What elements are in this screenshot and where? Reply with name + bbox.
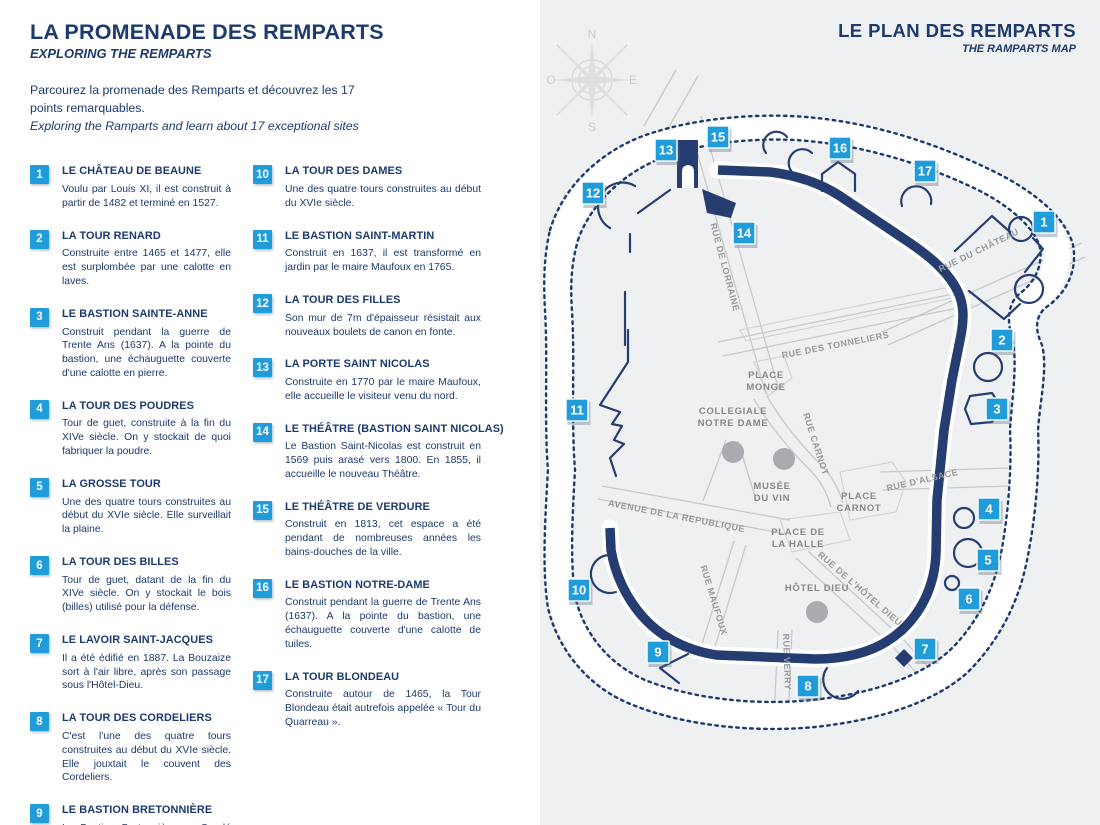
- brochure-page: LA PROMENADE DES REMPARTS EXPLORING THE …: [0, 0, 1100, 825]
- site-description: Voulu par Louis XI, il est construit à p…: [62, 183, 231, 211]
- map-title: LE PLAN DES REMPARTS: [838, 20, 1076, 42]
- site-title: LE BASTION SAINT-MARTIN: [285, 230, 481, 244]
- map-marker-16: 16: [829, 137, 854, 163]
- site-number-badge: 14: [253, 423, 272, 442]
- legend-panel: LA PROMENADE DES REMPARTS EXPLORING THE …: [0, 0, 540, 825]
- site-item-body: LA GROSSE TOURUne des quatre tours const…: [62, 478, 231, 537]
- compass-south-label: S: [588, 120, 596, 134]
- site-item-1: 1LE CHÂTEAU DE BEAUNEVoulu par Louis XI,…: [30, 165, 231, 210]
- map-marker-13: 13: [655, 139, 680, 165]
- map-marker-4: 4: [978, 498, 1003, 524]
- theatre-bastion-shape: [702, 189, 736, 218]
- site-title: LA TOUR RENARD: [62, 230, 231, 244]
- site-number-badge: 11: [253, 230, 272, 249]
- site-item-12: 12LA TOUR DES FILLESSon mur de 7m d'épai…: [253, 294, 481, 339]
- site-item-body: LA TOUR DES CORDELIERSC'est l'une des qu…: [62, 712, 231, 785]
- site-item-8: 8LA TOUR DES CORDELIERSC'est l'une des q…: [30, 712, 231, 785]
- intro-text-fr: Parcourez la promenade des Remparts et d…: [30, 82, 382, 118]
- map-marker-15: 15: [707, 126, 732, 152]
- site-title: LE THÉÂTRE DE VERDURE: [285, 501, 481, 515]
- site-item-body: LA TOUR BLONDEAUConstruite autour de 146…: [285, 671, 481, 730]
- site-description: Construit en 1813, cet espace a été pend…: [285, 518, 481, 559]
- site-item-11: 11LE BASTION SAINT-MARTINConstruit en 16…: [253, 230, 481, 275]
- site-number-badge: 10: [253, 165, 272, 184]
- svg-text:9: 9: [654, 645, 661, 660]
- map-header: LE PLAN DES REMPARTS THE RAMPARTS MAP: [838, 20, 1076, 55]
- svg-text:5: 5: [984, 553, 991, 568]
- site-item-13: 13LA PORTE SAINT NICOLASConstruite en 17…: [253, 358, 481, 403]
- svg-text:17: 17: [918, 164, 932, 179]
- map-label: RUE CARNOT: [801, 412, 831, 477]
- site-description: Le Bastion Saint-Nicolas est construit e…: [285, 440, 481, 481]
- map-marker-6: 6: [958, 588, 983, 614]
- page-title: LA PROMENADE DES REMPARTS: [30, 20, 520, 45]
- site-title: LA TOUR DES DAMES: [285, 165, 481, 179]
- site-number-badge: 17: [253, 671, 272, 690]
- site-number-badge: 16: [253, 579, 272, 598]
- site-title: LE BASTION SAINTE-ANNE: [62, 308, 231, 322]
- site-item-body: LE BASTION SAINTE-ANNEConstruit pendant …: [62, 308, 231, 381]
- site-item-17: 17LA TOUR BLONDEAUConstruite autour de 1…: [253, 671, 481, 730]
- site-title: LA TOUR DES FILLES: [285, 294, 481, 308]
- site-description: Construite autour de 1465, la Tour Blond…: [285, 688, 481, 729]
- svg-text:1: 1: [1040, 215, 1047, 230]
- map-marker-2: 2: [991, 329, 1016, 355]
- site-item-14: 14LE THÉÂTRE (BASTION SAINT NICOLAS)Le B…: [253, 423, 481, 482]
- site-item-body: LA PORTE SAINT NICOLASConstruite en 1770…: [285, 358, 481, 403]
- site-item-10: 10LA TOUR DES DAMESUne des quatre tours …: [253, 165, 481, 210]
- site-description: Construite en 1770 par le maire Maufoux,…: [285, 376, 481, 404]
- map-label: RUE MAUFOUX: [698, 564, 729, 636]
- site-description: C'est l'une des quatre tours construites…: [62, 730, 231, 785]
- site-number-badge: 12: [253, 294, 272, 313]
- site-number-badge: 3: [30, 308, 49, 327]
- sites-list: 1LE CHÂTEAU DE BEAUNEVoulu par Louis XI,…: [0, 135, 540, 825]
- hotel-dieu-dot: [806, 601, 828, 623]
- site-title: LE CHÂTEAU DE BEAUNE: [62, 165, 231, 179]
- map-label: PLACEMONGE: [746, 370, 785, 393]
- site-number-badge: 9: [30, 804, 49, 823]
- site-number-badge: 2: [30, 230, 49, 249]
- site-item-3: 3LE BASTION SAINTE-ANNEConstruit pendant…: [30, 308, 231, 381]
- svg-text:12: 12: [586, 186, 600, 201]
- site-item-body: LA TOUR RENARDConstruite entre 1465 et 1…: [62, 230, 231, 289]
- site-description: Construite entre 1465 et 1477, elle est …: [62, 247, 231, 288]
- site-number-badge: 6: [30, 556, 49, 575]
- site-item-6: 6LA TOUR DES BILLESTour de guet, datant …: [30, 556, 231, 615]
- svg-text:6: 6: [965, 592, 972, 607]
- map-marker-14: 14: [733, 222, 758, 248]
- site-title: LA TOUR DES CORDELIERS: [62, 712, 231, 726]
- site-item-body: LE BASTION BRETONNIÈRELe Bastion Bretonn…: [62, 804, 231, 825]
- site-item-4: 4LA TOUR DES POUDRESTour de guet, constr…: [30, 400, 231, 459]
- site-description: Construit pendant la guerre de Trente An…: [62, 326, 231, 381]
- map-label: RUE DES TONNELIERS: [781, 330, 890, 361]
- svg-text:15: 15: [711, 130, 725, 145]
- site-item-body: LE CHÂTEAU DE BEAUNEVoulu par Louis XI, …: [62, 165, 231, 210]
- sites-column-1: 1LE CHÂTEAU DE BEAUNEVoulu par Louis XI,…: [30, 165, 231, 825]
- site-item-body: LE THÉÂTRE (BASTION SAINT NICOLAS)Le Bas…: [285, 423, 481, 482]
- site-item-body: LE LAVOIR SAINT-JACQUESIl a été édifié e…: [62, 634, 231, 693]
- map-label: HÔTEL DIEU: [785, 582, 849, 594]
- map-label: PLACECARNOT: [837, 491, 882, 514]
- map-label: RUE VERRY: [781, 633, 793, 690]
- site-number-badge: 15: [253, 501, 272, 520]
- map-panel: LE PLAN DES REMPARTS THE RAMPARTS MAP N …: [540, 0, 1100, 825]
- map-subtitle: THE RAMPARTS MAP: [838, 43, 1076, 55]
- compass-north-label: N: [588, 27, 597, 41]
- page-subtitle: EXPLORING THE REMPARTS: [30, 46, 520, 61]
- site-number-badge: 7: [30, 634, 49, 653]
- site-description: Construit en 1637, il est transformé en …: [285, 247, 481, 275]
- site-number-badge: 4: [30, 400, 49, 419]
- site-description: Son mur de 7m d'épaisseur résistait aux …: [285, 312, 481, 340]
- collegiale-notre-dame-dot: [722, 441, 744, 463]
- site-number-badge: 13: [253, 358, 272, 377]
- site-item-body: LA TOUR DES POUDRESTour de guet, constru…: [62, 400, 231, 459]
- map-marker-9: 9: [647, 641, 672, 667]
- site-description: Construit pendant la guerre de Trente An…: [285, 596, 481, 651]
- site-title: LE THÉÂTRE (BASTION SAINT NICOLAS): [285, 423, 481, 437]
- map-marker-7: 7: [914, 638, 939, 664]
- map-label: AVENUE DE LA REPUBLIQUE: [607, 498, 745, 534]
- compass-west-label: O: [546, 73, 555, 87]
- site-item-5: 5LA GROSSE TOURUne des quatre tours cons…: [30, 478, 231, 537]
- site-title: LE LAVOIR SAINT-JACQUES: [62, 634, 231, 648]
- site-item-body: LA TOUR DES BILLESTour de guet, datant d…: [62, 556, 231, 615]
- intro-text-en: Exploring the Ramparts and learn about 1…: [30, 118, 390, 136]
- site-title: LA PORTE SAINT NICOLAS: [285, 358, 481, 372]
- site-item-16: 16LE BASTION NOTRE-DAMEConstruit pendant…: [253, 579, 481, 652]
- svg-text:10: 10: [572, 583, 586, 598]
- map-label: COLLEGIALENOTRE DAME: [698, 406, 769, 429]
- sites-column-2: 10LA TOUR DES DAMESUne des quatre tours …: [253, 165, 481, 825]
- map-marker-1: 1: [1033, 211, 1058, 237]
- site-description: Une des quatre tours construites au débu…: [62, 496, 231, 537]
- site-item-7: 7LE LAVOIR SAINT-JACQUESIl a été édifié …: [30, 634, 231, 693]
- map-label: PLACE DELA HALLE: [771, 527, 825, 550]
- compass-east-label: E: [629, 73, 637, 87]
- map-marker-11: 11: [566, 399, 591, 425]
- svg-text:2: 2: [998, 333, 1005, 348]
- site-item-body: LE THÉÂTRE DE VERDUREConstruit en 1813, …: [285, 501, 481, 560]
- site-number-badge: 8: [30, 712, 49, 731]
- map-label: RUE DU CHÂTEAU: [937, 226, 1021, 274]
- site-title: LA TOUR DES BILLES: [62, 556, 231, 570]
- site-item-15: 15LE THÉÂTRE DE VERDUREConstruit en 1813…: [253, 501, 481, 560]
- site-item-body: LE BASTION SAINT-MARTINConstruit en 1637…: [285, 230, 481, 275]
- site-title: LA GROSSE TOUR: [62, 478, 231, 492]
- musee-du-vin-dot: [773, 448, 795, 470]
- svg-text:7: 7: [921, 642, 928, 657]
- site-item-body: LE BASTION NOTRE-DAMEConstruit pendant l…: [285, 579, 481, 652]
- svg-text:16: 16: [833, 141, 847, 156]
- site-item-body: LA TOUR DES DAMESUne des quatre tours co…: [285, 165, 481, 210]
- svg-text:4: 4: [985, 502, 993, 517]
- svg-text:11: 11: [570, 403, 584, 418]
- map-marker-5: 5: [977, 549, 1002, 575]
- map-marker-10: 10: [568, 579, 593, 605]
- site-title: LE BASTION NOTRE-DAME: [285, 579, 481, 593]
- svg-text:3: 3: [993, 402, 1000, 417]
- porte-saint-nicolas-gate-icon: [677, 140, 698, 188]
- legend-header: LA PROMENADE DES REMPARTS EXPLORING THE …: [0, 0, 540, 135]
- svg-text:8: 8: [804, 679, 811, 694]
- site-description: Une des quatre tours construites au débu…: [285, 183, 481, 211]
- site-description: Tour de guet, construite à la fin du XIV…: [62, 417, 231, 458]
- site-item-9: 9LE BASTION BRETONNIÈRELe Bastion Breton…: [30, 804, 231, 825]
- site-description: Il a été édifié en 1887. La Bouzaize sor…: [62, 652, 231, 693]
- site-description: Tour de guet, datant de la fin du XIVe s…: [62, 574, 231, 615]
- site-title: LE BASTION BRETONNIÈRE: [62, 804, 231, 818]
- svg-text:13: 13: [659, 143, 673, 158]
- site-number-badge: 1: [30, 165, 49, 184]
- ramparts-map: N O E S: [540, 0, 1100, 825]
- svg-text:14: 14: [737, 226, 752, 241]
- site-item-body: LA TOUR DES FILLESSon mur de 7m d'épaiss…: [285, 294, 481, 339]
- map-marker-8: 8: [797, 675, 822, 701]
- map-label: MUSÉEDU VIN: [753, 481, 790, 504]
- map-marker-17: 17: [914, 160, 939, 186]
- site-title: LA TOUR DES POUDRES: [62, 400, 231, 414]
- site-number-badge: 5: [30, 478, 49, 497]
- map-marker-12: 12: [582, 182, 607, 208]
- site-title: LA TOUR BLONDEAU: [285, 671, 481, 685]
- compass-rose-icon: N O E S: [546, 27, 637, 134]
- map-marker-3: 3: [986, 398, 1011, 424]
- site-item-2: 2LA TOUR RENARDConstruite entre 1465 et …: [30, 230, 231, 289]
